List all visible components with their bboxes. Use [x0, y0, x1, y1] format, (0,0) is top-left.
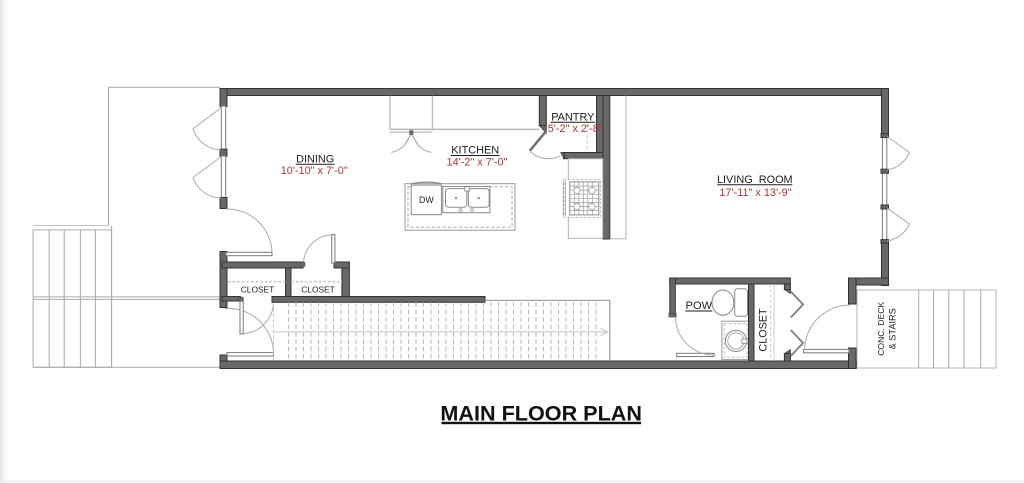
svg-text:CLOSET: CLOSET	[241, 285, 275, 295]
svg-text:KITCHEN: KITCHEN	[451, 145, 499, 157]
svg-text:5'-2" x 2'-8": 5'-2" x 2'-8"	[548, 123, 603, 135]
svg-text:& STAIRS: & STAIRS	[887, 308, 897, 349]
svg-text:10'-10" x 7'-0": 10'-10" x 7'-0"	[281, 165, 348, 177]
svg-text:14'-2" x 7'-0": 14'-2" x 7'-0"	[447, 156, 508, 168]
svg-text:MAIN FLOOR PLAN: MAIN FLOOR PLAN	[440, 400, 642, 425]
svg-text:DW: DW	[419, 195, 434, 205]
svg-text:17'-11" x 13'-9": 17'-11" x 13'-9"	[719, 187, 791, 199]
svg-text:DINING: DINING	[296, 153, 334, 165]
svg-text:CONC. DECK: CONC. DECK	[876, 302, 886, 356]
svg-text:CLOSET: CLOSET	[301, 285, 335, 295]
svg-text:POW: POW	[686, 300, 713, 312]
svg-text:CLOSET: CLOSET	[758, 308, 770, 352]
svg-text:LIVING ROOM: LIVING ROOM	[717, 174, 793, 186]
